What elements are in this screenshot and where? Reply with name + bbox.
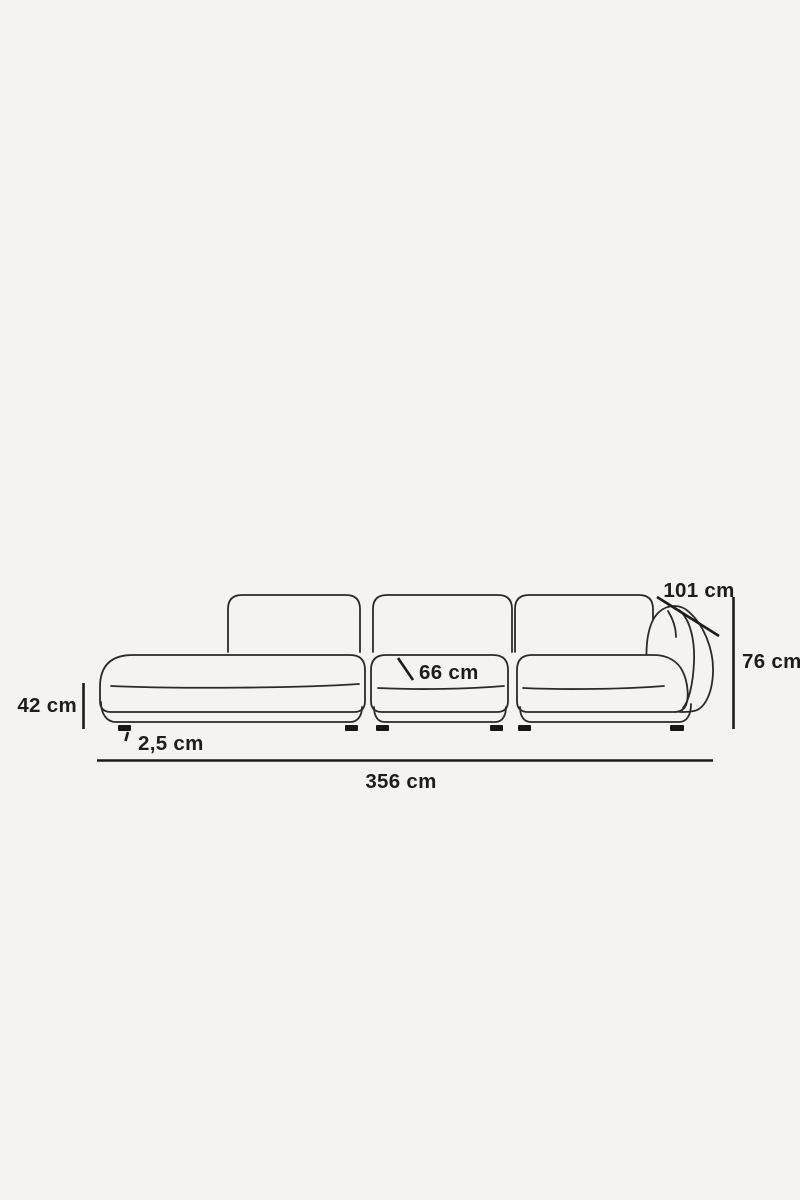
sofa-line-drawing: 42 cm 2,5 cm 66 cm 101 cm 76 cm 356 cm (0, 0, 800, 1200)
leg-height-label: 2,5 cm (138, 732, 204, 755)
total-width-label: 356 cm (365, 770, 436, 793)
total-height-label: 76 cm (742, 650, 800, 673)
seat-depth-label: 66 cm (419, 661, 479, 684)
backrest-left (228, 595, 360, 652)
dim-tick-leg-height (126, 732, 129, 741)
seat-module-left (100, 655, 365, 712)
sofa-foot (670, 725, 684, 731)
sofa-dimension-diagram: 42 cm 2,5 cm 66 cm 101 cm 76 cm 356 cm (0, 0, 800, 1200)
sofa-foot (376, 725, 389, 731)
seat-height-label: 42 cm (17, 694, 77, 717)
seat-module-right-with-arm (517, 655, 688, 712)
sofa-foot (345, 725, 358, 731)
backrest-right (515, 595, 653, 652)
total-depth-label: 101 cm (663, 579, 734, 602)
sofa-foot (518, 725, 531, 731)
backrest-middle (373, 595, 512, 652)
sofa-foot (490, 725, 503, 731)
sofa-foot (118, 725, 131, 731)
